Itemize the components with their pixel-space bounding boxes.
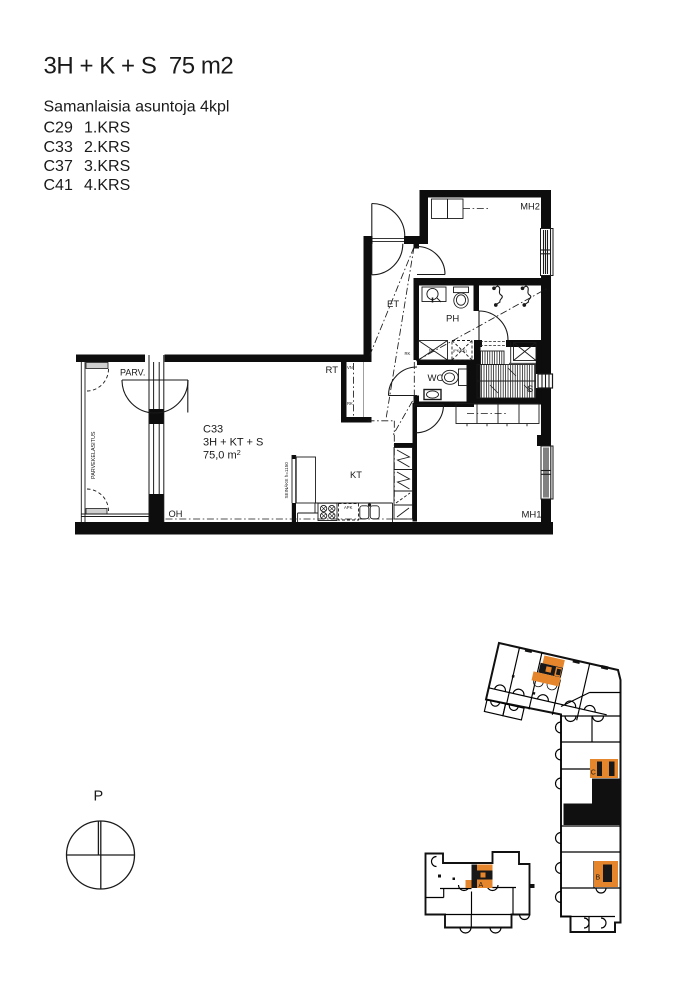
- svg-text:PARV.: PARV.: [120, 368, 145, 378]
- svg-text:C33: C33: [203, 424, 223, 436]
- svg-text:75,0 m2: 75,0 m2: [203, 448, 241, 462]
- svg-text:3H + KT + S: 3H + KT + S: [203, 437, 263, 449]
- svg-text:WC: WC: [428, 373, 444, 384]
- svg-text:VN: VN: [347, 365, 353, 370]
- svg-text:RT: RT: [326, 365, 339, 376]
- svg-text:S: S: [527, 384, 533, 395]
- svg-text:OH: OH: [169, 509, 183, 519]
- svg-text:RK: RK: [405, 351, 411, 356]
- svg-text:RK: RK: [347, 401, 353, 406]
- svg-text:MH1: MH1: [522, 510, 542, 521]
- svg-text:PK: PK: [429, 348, 435, 353]
- svg-text:SEINÄKE h=1150: SEINÄKE h=1150: [283, 462, 289, 499]
- svg-text:3H + K + S 75 m2: 3H + K + S 75 m2: [44, 53, 234, 80]
- svg-text:C291.KRS: C291.KRS: [44, 120, 131, 137]
- svg-text:A: A: [479, 882, 484, 889]
- svg-text:Samanlaisia asuntoja 4kpl: Samanlaisia asuntoja 4kpl: [44, 99, 230, 116]
- svg-text:MH2: MH2: [520, 202, 540, 212]
- svg-text:PH: PH: [446, 314, 459, 325]
- svg-text:P: P: [94, 789, 104, 805]
- svg-text:B: B: [596, 875, 601, 882]
- svg-text:C: C: [591, 770, 596, 777]
- svg-text:C332.KRS: C332.KRS: [44, 139, 131, 156]
- svg-text:C414.KRS: C414.KRS: [44, 177, 131, 194]
- svg-text:C373.KRS: C373.KRS: [44, 158, 131, 175]
- svg-text:KT: KT: [350, 470, 362, 480]
- svg-text:PARVEKELASITUS: PARVEKELASITUS: [91, 431, 97, 479]
- svg-text:(PK/KK): (PK/KK): [453, 349, 467, 353]
- svg-text:APK: APK: [344, 505, 353, 510]
- svg-text:ET: ET: [387, 299, 399, 310]
